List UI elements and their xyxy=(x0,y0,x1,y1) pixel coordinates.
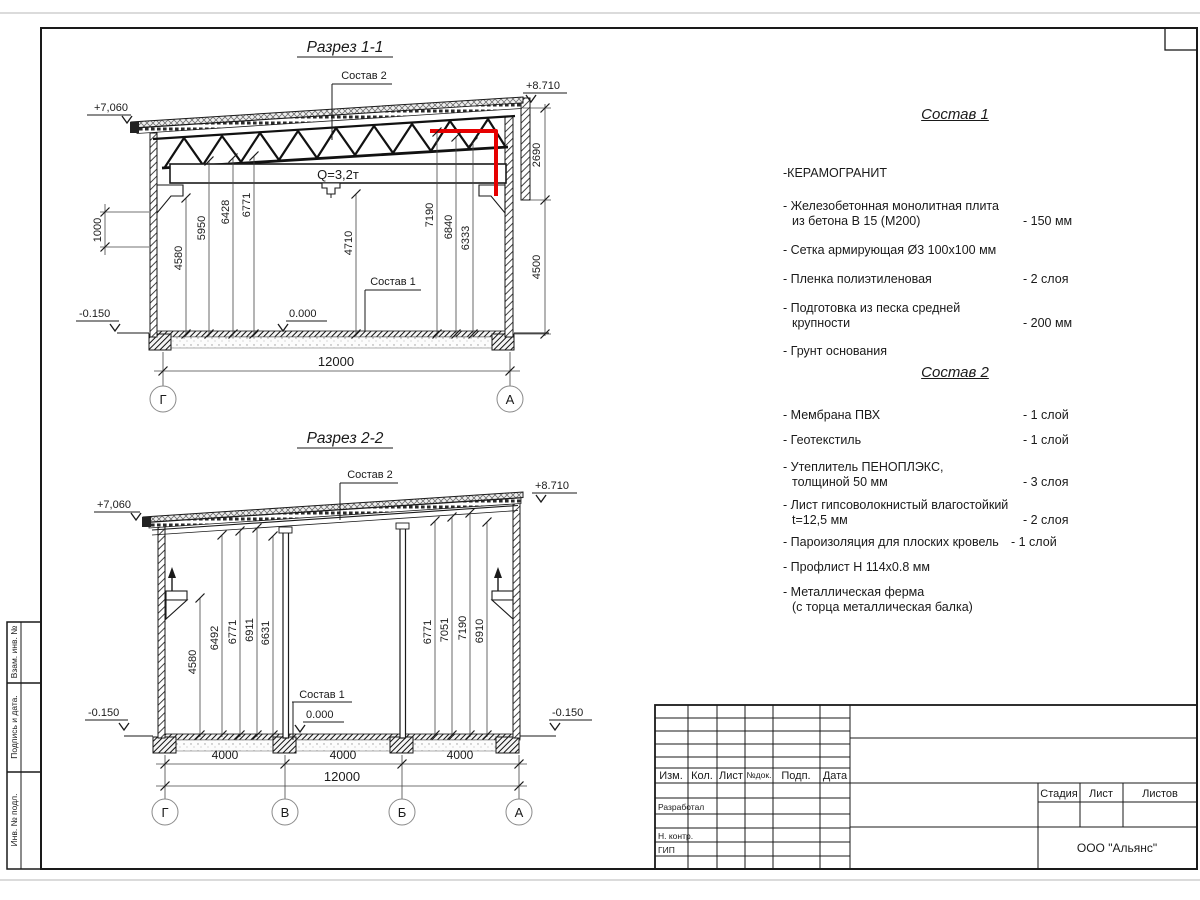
sidebar-row-label: Взам. инв. № xyxy=(9,626,19,679)
section-2-title: Разрез 2-2 xyxy=(307,430,384,447)
list-item: - Железобетонная монолитная плита из бет… xyxy=(783,199,1103,229)
level-mark-label: -0.150 xyxy=(79,308,110,320)
dim-label: 6910 xyxy=(474,619,486,643)
axis-label: А xyxy=(515,805,524,820)
item-text: - Утеплитель ПЕНОПЛЭКС, xyxy=(783,460,1103,475)
dim-bay-label: 4000 xyxy=(212,748,239,762)
list-item: - Пароизоляция для плоских кровель - 1 с… xyxy=(783,535,1103,550)
item-text: - Грунт основания xyxy=(783,344,1103,359)
roof-edge-cap xyxy=(142,517,151,527)
sostav2-callout: Состав 2 xyxy=(347,469,393,481)
dim-label: 6428 xyxy=(220,200,232,224)
dim-bay-label: 4000 xyxy=(330,748,357,762)
sostav1-callout: Состав 1 xyxy=(370,276,416,288)
role-label: Разработал xyxy=(658,802,704,812)
axis-label: Г xyxy=(159,392,166,407)
foundation xyxy=(153,737,176,753)
dim-label: 4710 xyxy=(343,231,355,255)
list-item: - Подготовка из песка средней крупности … xyxy=(783,301,1103,331)
section-2-2: Разрез 2-2 xyxy=(85,430,592,825)
section-1-title: Разрез 1-1 xyxy=(307,39,384,56)
list-item: - Лист гипсоволокнистый влагостойкий t=1… xyxy=(783,498,1103,528)
stage-header: Стадия xyxy=(1040,788,1078,800)
list-item: - Геотекстиль - 1 слой xyxy=(783,433,1103,448)
dim-total-label: 12000 xyxy=(324,769,360,784)
list-item: - Профлист Н 114х0.8 мм xyxy=(783,560,1103,575)
item-value: - 2 слоя xyxy=(1023,272,1068,287)
item-value: - 200 мм xyxy=(1023,316,1072,331)
bracket-left xyxy=(157,185,183,213)
dim-label: 7190 xyxy=(457,616,469,640)
dim-label: 6911 xyxy=(244,618,256,642)
list-item: - Утеплитель ПЕНОПЛЭКС, толщиной 50 мм -… xyxy=(783,460,1103,490)
column-Б xyxy=(400,528,406,738)
rev-header: Подп. xyxy=(781,770,810,782)
bracket-right xyxy=(492,591,513,600)
roof-edge-cap xyxy=(130,122,139,133)
level-mark-label: +7,060 xyxy=(94,102,128,114)
item-text: (с торца металлическая балка) xyxy=(783,600,1103,615)
list-item: - Мембрана ПВХ - 1 слой xyxy=(783,408,1103,423)
level-mark-label: 0.000 xyxy=(289,308,317,320)
level-mark-label: -0.150 xyxy=(88,707,119,719)
foundation xyxy=(390,737,413,753)
item-value: - 1 слой xyxy=(1011,535,1057,550)
dim-label: 6840 xyxy=(443,215,455,239)
list-item: -КЕРАМОГРАНИТ xyxy=(783,166,1103,181)
level-mark-label: +8.710 xyxy=(535,480,569,492)
item-text: - Профлист Н 114х0.8 мм xyxy=(783,560,1103,575)
dim-label: 5950 xyxy=(196,216,208,240)
wall-right xyxy=(513,495,520,738)
item-text: -КЕРАМОГРАНИТ xyxy=(783,166,1103,181)
role-label: Н. контр. xyxy=(658,831,693,841)
item-value: - 3 слоя xyxy=(1023,475,1068,490)
sostav2-heading: Состав 2 xyxy=(855,364,1055,381)
axis-label: Б xyxy=(398,805,407,820)
up-arrow xyxy=(494,567,502,578)
dim-label: 7190 xyxy=(424,203,436,227)
bracket-right xyxy=(479,185,505,213)
sidebar-row-label: Подпись и дата. xyxy=(9,695,19,759)
frame-sidebar: Взам. инв. № Подпись и дата. Инв. № подл… xyxy=(7,622,41,869)
axis-label: А xyxy=(506,392,515,407)
level-mark-label: +7,060 xyxy=(97,499,131,511)
dim-total-label: 12000 xyxy=(318,354,354,369)
up-arrow xyxy=(168,567,176,578)
list-item: - Металлическая ферма (с торца металличе… xyxy=(783,585,1103,615)
section-1-1: Разрез 1-1 Q=3,2т xyxy=(76,39,567,412)
dim-label: 4500 xyxy=(531,255,543,279)
drawing-canvas: Разрез 1-1 Q=3,2т xyxy=(0,0,1200,900)
rev-header: Лист xyxy=(719,770,743,782)
foundation xyxy=(496,737,519,753)
item-value: - 2 слоя xyxy=(1023,513,1068,528)
company-name: ООО "Альянс" xyxy=(1077,841,1157,855)
list-item: - Сетка армирующая Ø3 100х100 мм xyxy=(783,243,1103,258)
dim-label: 6771 xyxy=(241,193,253,217)
level-mark-label: 0.000 xyxy=(306,709,334,721)
purlin xyxy=(279,527,292,533)
bracket-left xyxy=(166,591,187,600)
rev-header: Дата xyxy=(823,770,848,782)
sheets-header: Листов xyxy=(1142,788,1178,800)
dim-label: 1000 xyxy=(92,218,104,242)
dim-label: 4580 xyxy=(173,246,185,270)
dim-bay-label: 4000 xyxy=(447,748,474,762)
sheet-header: Лист xyxy=(1089,788,1113,800)
wall-left xyxy=(150,133,157,337)
wall-left xyxy=(158,527,165,738)
item-text: - Железобетонная монолитная плита xyxy=(783,199,1103,214)
axis-label: В xyxy=(281,805,290,820)
item-text: - Сетка армирующая Ø3 100х100 мм xyxy=(783,243,1103,258)
item-value: - 150 мм xyxy=(1023,214,1072,229)
crane-hook xyxy=(322,183,340,194)
sostav1-callout: Состав 1 xyxy=(299,689,345,701)
rev-header: Изм. xyxy=(659,770,683,782)
dim-label: 4580 xyxy=(187,650,199,674)
sostav1-heading: Состав 1 xyxy=(855,106,1055,123)
drawing-sheet: Разрез 1-1 Q=3,2т xyxy=(0,0,1200,900)
dim-label: 6771 xyxy=(227,620,239,644)
parapet-column xyxy=(521,98,530,200)
axis-label: Г xyxy=(161,805,168,820)
sand-bed xyxy=(170,337,495,348)
dim-label: 6771 xyxy=(422,620,434,644)
column-B xyxy=(283,532,289,738)
list-item: - Пленка полиэтиленовая - 2 слоя xyxy=(783,272,1103,287)
rev-header: Кол. xyxy=(691,770,713,782)
level-mark-label: +8.710 xyxy=(526,80,560,92)
dim-label: 6492 xyxy=(209,626,221,650)
item-text: - Подготовка из песка средней xyxy=(783,301,1103,316)
list-item: - Грунт основания xyxy=(783,344,1103,359)
dim-label: 6631 xyxy=(260,621,272,645)
item-value: - 1 слой xyxy=(1023,433,1069,448)
dim-label: 2690 xyxy=(531,143,543,167)
item-value: - 1 слой xyxy=(1023,408,1069,423)
crane-capacity-label: Q=3,2т xyxy=(317,167,359,182)
item-text: - Металлическая ферма xyxy=(783,585,1103,600)
level-mark-label: -0.150 xyxy=(552,707,583,719)
dim-label: 6333 xyxy=(460,226,472,250)
rev-header: №док. xyxy=(747,770,772,780)
role-label: ГИП xyxy=(658,845,675,855)
wall-right xyxy=(505,116,513,337)
purlin xyxy=(396,523,409,529)
title-block: Изм. Кол. Лист №док. Подп. Дата Разработ… xyxy=(655,705,1197,869)
dim-label: 7051 xyxy=(439,618,451,642)
sidebar-row-label: Инв. № подл. xyxy=(9,794,19,847)
sheet-number-box xyxy=(1165,28,1197,50)
sostav2-callout: Состав 2 xyxy=(341,70,387,82)
item-text: - Лист гипсоволокнистый влагостойкий xyxy=(783,498,1103,513)
